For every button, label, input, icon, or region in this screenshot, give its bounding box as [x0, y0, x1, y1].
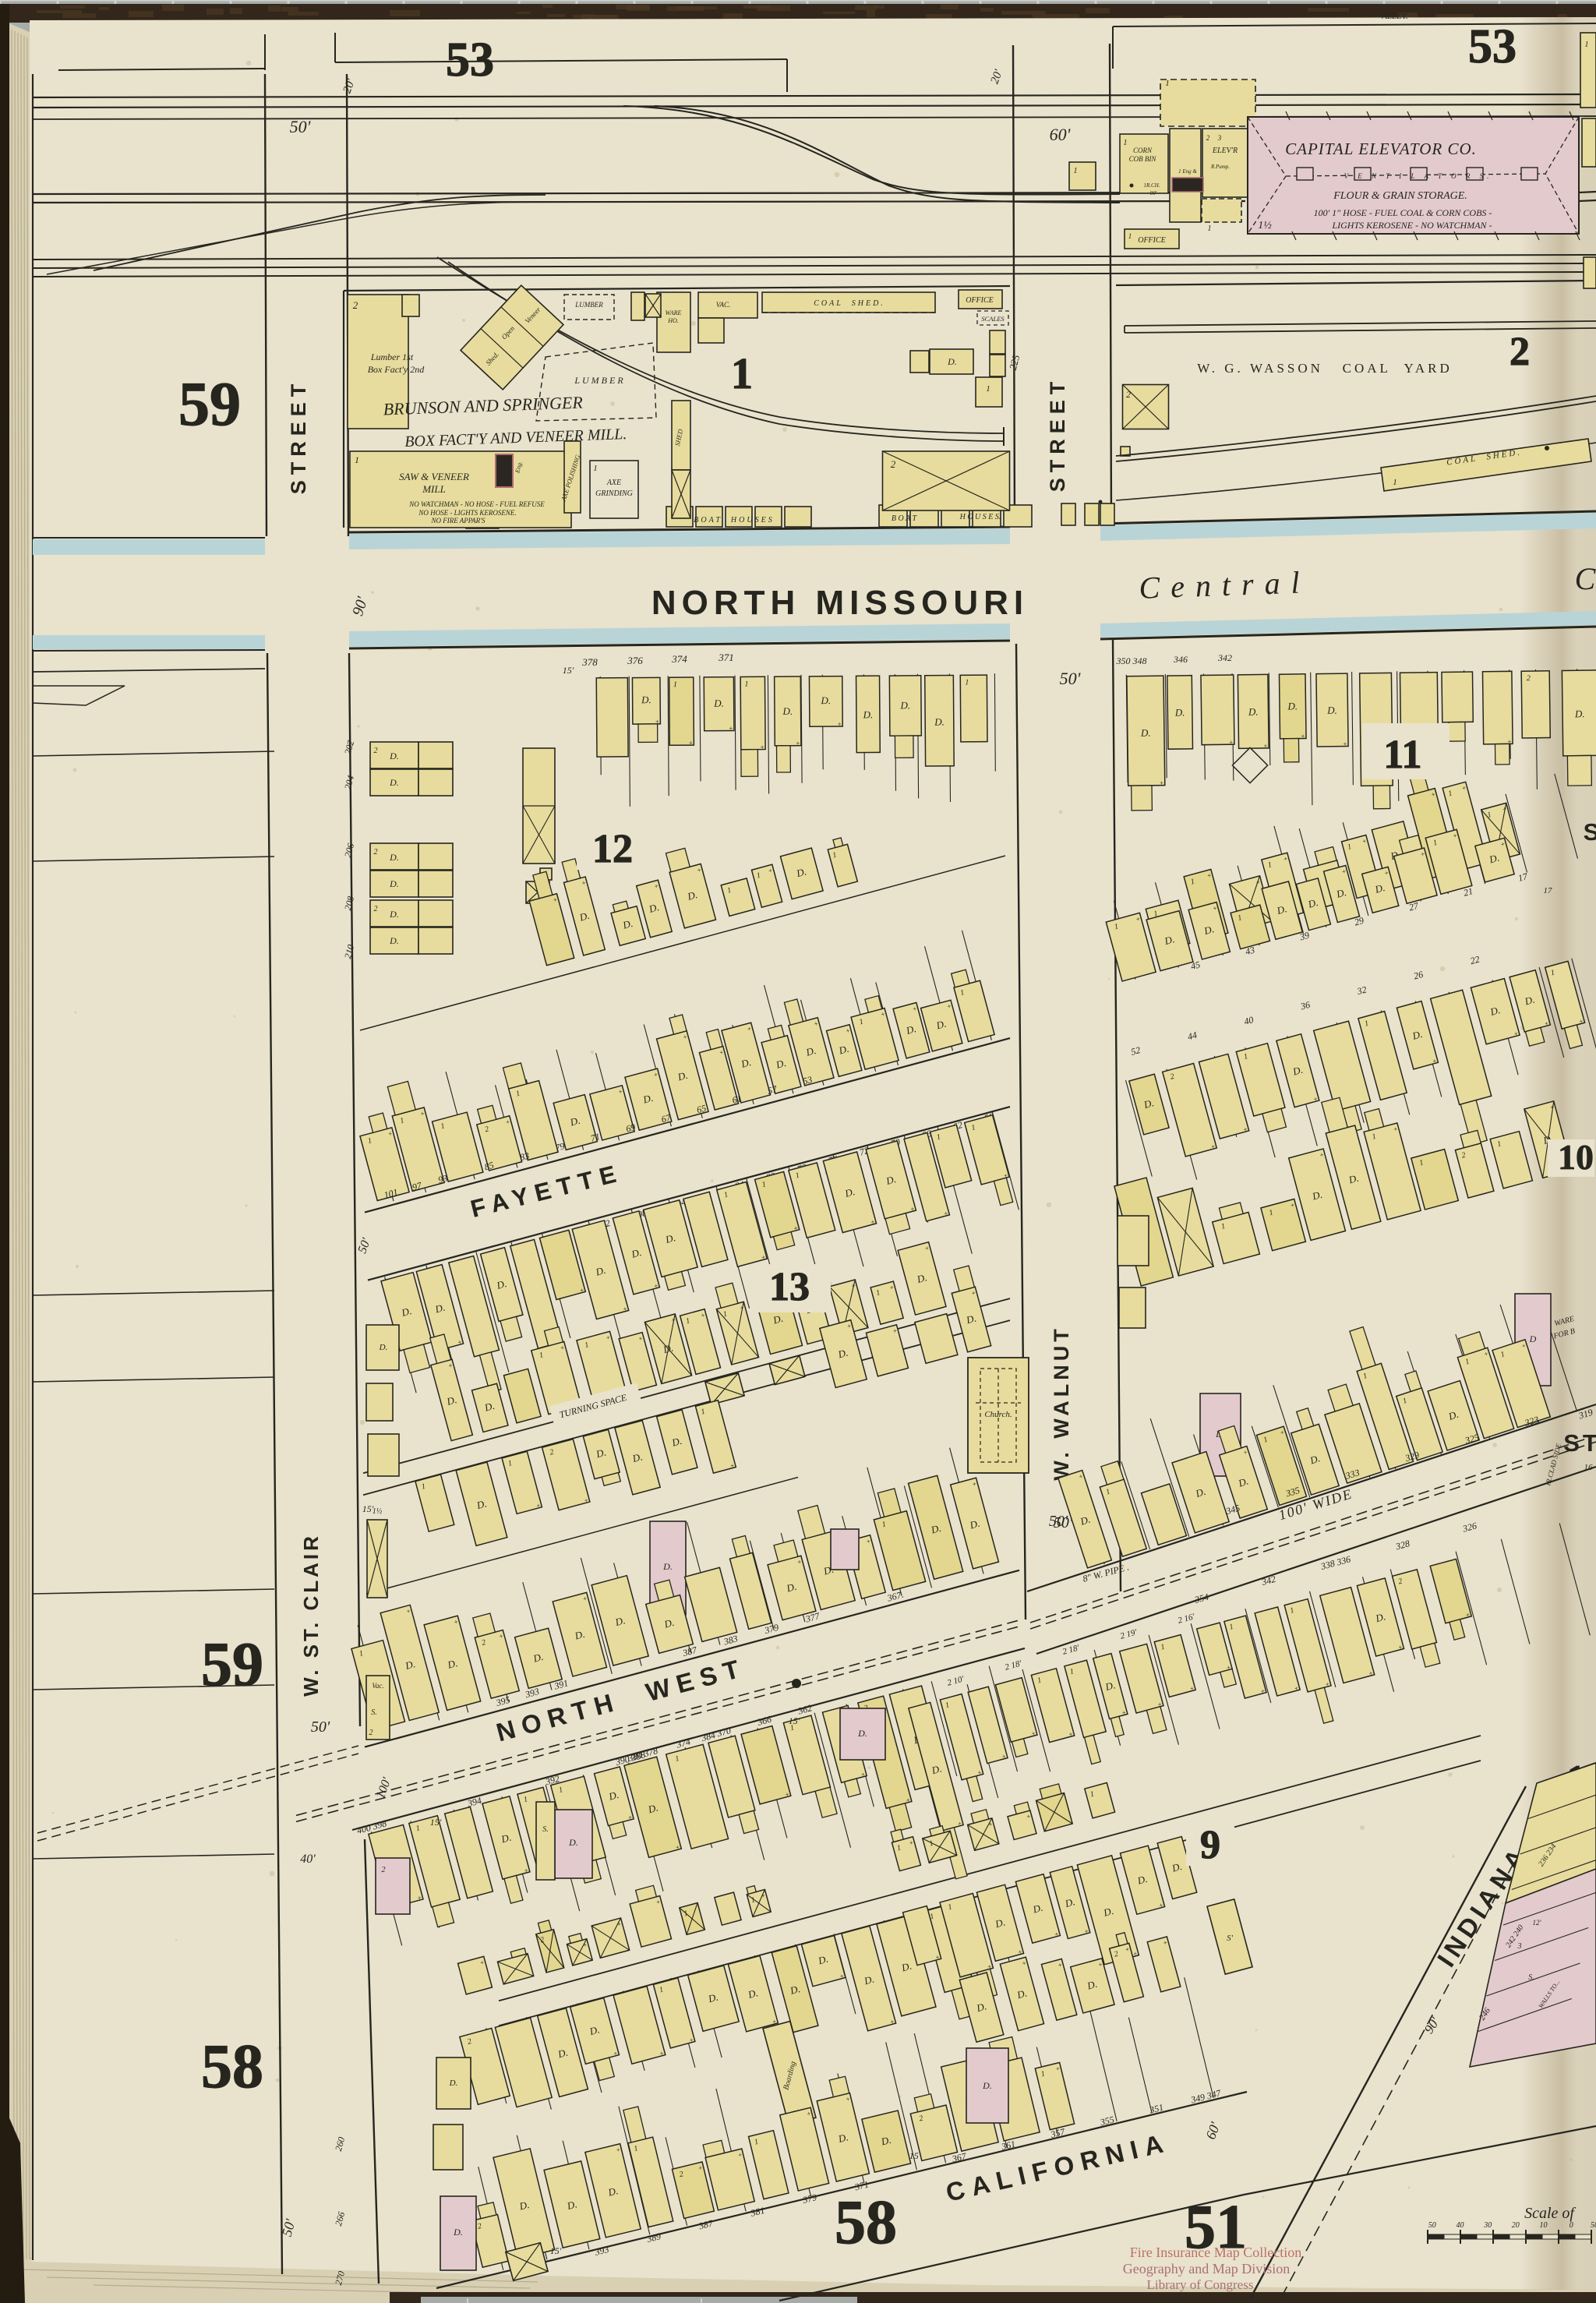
svg-text:D.: D.: [713, 698, 724, 709]
svg-text:ELEV'R: ELEV'R: [1212, 147, 1238, 155]
svg-text:W. G. WASSON COAL YARD: W. G. WASSON COAL YARD: [1197, 361, 1452, 376]
svg-text:D.: D.: [1248, 706, 1259, 718]
svg-text:S.: S.: [1528, 1973, 1534, 1982]
svg-text:D.: D.: [863, 708, 874, 720]
svg-text:D.: D.: [1287, 700, 1298, 712]
svg-text:D.: D.: [899, 699, 910, 711]
svg-text:1: 1: [986, 384, 990, 394]
svg-text:2: 2: [374, 848, 378, 857]
svg-text:GRINDING: GRINDING: [595, 489, 633, 498]
svg-text:15': 15': [563, 665, 574, 676]
svg-text:10: 10: [1540, 2221, 1548, 2230]
svg-text:2: 2: [382, 1866, 386, 1874]
svg-text:2: 2: [1509, 330, 1530, 374]
svg-text:Vac.: Vac.: [372, 1682, 383, 1690]
svg-text:NO FIRE APPAR'S: NO FIRE APPAR'S: [430, 517, 486, 525]
svg-text:CORN: CORN: [1133, 147, 1153, 154]
svg-text:50': 50': [1049, 1513, 1068, 1530]
svg-text:HO.: HO.: [667, 317, 679, 324]
svg-text:+: +: [838, 720, 842, 728]
svg-text:17: 17: [1544, 886, 1553, 895]
svg-text:+: +: [1229, 738, 1233, 746]
svg-text:V E N T I L A T: V E N T I L A T O R S.: [1344, 172, 1493, 180]
svg-text:+: +: [1343, 740, 1347, 747]
svg-text:1½: 1½: [1258, 220, 1272, 231]
svg-text:1: 1: [1074, 167, 1078, 175]
svg-text:100' 1" HOSE - FUEL COAL & CO: 100' 1" HOSE - FUEL COAL & CORN COBS -: [1314, 207, 1492, 218]
svg-text:1: 1: [673, 680, 677, 689]
svg-text:NO WATCHMAN - NO HOSE - FUEL R: NO WATCHMAN - NO HOSE - FUEL REFUSE: [408, 500, 545, 508]
svg-text:VAC.: VAC.: [716, 301, 731, 309]
svg-text:+: +: [796, 740, 800, 747]
svg-text:2: 2: [1206, 134, 1210, 142]
svg-text:50': 50': [311, 1718, 330, 1736]
svg-text:16: 16: [1584, 1463, 1594, 1472]
svg-text:15': 15': [550, 2245, 562, 2256]
svg-text:Box Fact'y 2nd: Box Fact'y 2nd: [368, 364, 425, 375]
svg-text:3: 3: [1517, 1942, 1522, 1951]
svg-text:1: 1: [1165, 79, 1170, 88]
svg-text:ALLEY.: ALLEY.: [1381, 12, 1408, 21]
svg-text:346: 346: [1173, 654, 1188, 665]
svg-text:Fire Insurance Map Collection: Fire Insurance Map Collection: [1130, 2245, 1301, 2260]
svg-text:2: 2: [369, 1729, 373, 1737]
svg-text:D.: D.: [820, 694, 831, 706]
svg-text:1: 1: [593, 464, 598, 473]
svg-text:13: 13: [769, 1265, 810, 1309]
svg-text:1: 1: [1208, 224, 1212, 233]
svg-text:58: 58: [201, 2033, 263, 2101]
svg-text:+: +: [1263, 742, 1267, 750]
svg-text:D.: D.: [389, 852, 399, 863]
svg-text:58: 58: [835, 2188, 897, 2257]
svg-text:350 348: 350 348: [1116, 655, 1147, 666]
svg-text:374: 374: [671, 653, 687, 665]
svg-text:S.: S.: [371, 1708, 377, 1717]
svg-text:ST: ST: [1563, 1429, 1596, 1457]
svg-text:STREET: STREET: [287, 379, 310, 495]
svg-text:+: +: [1507, 737, 1511, 745]
svg-text:60': 60': [1050, 125, 1071, 144]
svg-text:D.: D.: [1326, 705, 1337, 716]
svg-text:59: 59: [201, 1630, 263, 1699]
svg-text:D.: D.: [389, 909, 399, 920]
svg-text:D.: D.: [982, 2080, 992, 2091]
svg-text:S': S': [1227, 1934, 1234, 1943]
svg-text:1: 1: [1393, 478, 1397, 487]
svg-text:OFFICE: OFFICE: [966, 296, 994, 305]
svg-text:D.: D.: [568, 1837, 578, 1848]
svg-text:53: 53: [1468, 20, 1517, 73]
svg-text:D.: D.: [1574, 708, 1585, 719]
svg-text:FLOUR & GRAIN STORAGE.: FLOUR & GRAIN STORAGE.: [1333, 190, 1467, 202]
svg-text:342: 342: [1217, 652, 1232, 663]
svg-text:COAL SHED.: COAL SHED.: [814, 299, 885, 308]
svg-text:LIGHTS KEROSENE - NO WATCHM: LIGHTS KEROSENE - NO WATCHMAN -: [1331, 220, 1492, 231]
svg-text:D.: D.: [453, 2227, 463, 2238]
svg-text:50: 50: [1591, 2221, 1596, 2230]
svg-text:D.: D.: [641, 694, 651, 705]
svg-text:12': 12': [1533, 1919, 1542, 1927]
svg-text:+: +: [729, 725, 733, 733]
svg-text:40: 40: [1457, 2221, 1464, 2230]
svg-text:D.: D.: [662, 1561, 673, 1572]
svg-text:LUMBER: LUMBER: [574, 375, 625, 386]
svg-text:D.: D.: [934, 716, 945, 728]
svg-text:53: 53: [446, 34, 494, 87]
svg-text:40': 40': [300, 1853, 316, 1866]
svg-text:0: 0: [1570, 2221, 1573, 2230]
svg-text:1 Eng &: 1 Eng &: [1178, 168, 1197, 175]
svg-text:+: +: [761, 744, 764, 751]
svg-text:D.: D.: [389, 777, 399, 788]
svg-text:MILL: MILL: [422, 483, 446, 495]
svg-text:H O U S E S.: H O U S E S.: [959, 513, 1001, 521]
svg-text:D.: D.: [449, 2079, 458, 2088]
svg-text:Geography and Map Division: Geography and Map Division: [1123, 2261, 1290, 2277]
svg-text:20: 20: [1512, 2221, 1520, 2230]
svg-text:15': 15': [430, 1817, 442, 1828]
svg-text:1: 1: [355, 454, 359, 465]
svg-text:D.: D.: [782, 705, 793, 717]
svg-text:S.: S.: [542, 1825, 549, 1834]
svg-text:Central: Central: [1139, 564, 1312, 606]
svg-text:Scale of: Scale of: [1524, 2205, 1576, 2222]
svg-text:Lumber 1st: Lumber 1st: [370, 351, 414, 362]
svg-text:1½: 1½: [373, 1507, 383, 1516]
svg-text:W. ST. CLAIR: W. ST. CLAIR: [299, 1533, 323, 1697]
svg-text:LUMBER: LUMBER: [574, 301, 603, 309]
svg-text:2: 2: [374, 747, 378, 755]
svg-text:3: 3: [1217, 134, 1222, 142]
svg-text:11: 11: [1383, 733, 1421, 777]
svg-text:12: 12: [592, 827, 633, 871]
svg-text:D.: D.: [947, 356, 957, 367]
svg-text:CAPITAL ELEVATOR CO.: CAPITAL ELEVATOR CO.: [1285, 140, 1477, 158]
svg-text:2: 2: [1126, 389, 1131, 400]
svg-text:BOAT HOUSES: BOAT HOUSES: [694, 516, 774, 525]
svg-text:SCALES: SCALES: [981, 315, 1005, 323]
svg-text:15': 15': [789, 1715, 800, 1726]
svg-text:90': 90': [1150, 190, 1157, 196]
svg-text:STREET: STREET: [1046, 376, 1069, 493]
svg-text:2: 2: [891, 458, 896, 470]
svg-text:2: 2: [374, 905, 378, 913]
svg-text:50': 50': [1060, 669, 1081, 688]
svg-text:1: 1: [1585, 41, 1589, 49]
svg-text:R.Pump.: R.Pump.: [1210, 164, 1230, 170]
svg-text:+: +: [1301, 732, 1305, 740]
svg-text:15': 15': [362, 1503, 374, 1514]
svg-text:D.: D.: [389, 935, 399, 946]
svg-text:50: 50: [1428, 2221, 1436, 2230]
svg-text:1: 1: [965, 678, 969, 687]
svg-text:D.: D.: [379, 1343, 388, 1352]
svg-text:15': 15': [909, 2150, 921, 2161]
svg-text:S: S: [1584, 818, 1596, 846]
svg-text:1R.CH.: 1R.CH.: [1144, 182, 1160, 189]
svg-text:+: +: [655, 718, 659, 726]
svg-text:30: 30: [1483, 2221, 1492, 2230]
svg-text:W. WALNUT: W. WALNUT: [1050, 1325, 1073, 1480]
svg-text:B O A T: B O A T: [892, 514, 918, 523]
svg-text:10: 10: [1558, 1137, 1594, 1177]
svg-text:D.: D.: [1174, 707, 1185, 719]
svg-text:D: D: [1529, 1333, 1537, 1344]
svg-text:D.: D.: [389, 878, 399, 889]
svg-text:2: 2: [353, 299, 358, 311]
svg-text:NORTH MISSOURI: NORTH MISSOURI: [651, 584, 1029, 622]
svg-text:D.: D.: [389, 751, 399, 761]
svg-text:378: 378: [581, 656, 598, 668]
svg-text:COB BIN: COB BIN: [1129, 155, 1157, 163]
svg-text:C: C: [1575, 561, 1596, 596]
svg-text:NO HOSE - LIGHTS KEROSENE.: NO HOSE - LIGHTS KEROSENE.: [418, 509, 516, 517]
svg-text:9: 9: [1200, 1823, 1220, 1867]
svg-text:50': 50': [290, 117, 311, 136]
svg-text:Library of Congress: Library of Congress: [1147, 2277, 1254, 2292]
svg-text:+: +: [689, 739, 693, 747]
svg-text:WARE: WARE: [666, 309, 682, 316]
svg-text:D.: D.: [857, 1728, 867, 1739]
svg-text:AXE: AXE: [606, 479, 621, 487]
svg-text:1: 1: [1128, 232, 1132, 240]
svg-text:Church.: Church.: [984, 1410, 1012, 1419]
svg-text:371: 371: [718, 652, 734, 663]
svg-text:376: 376: [627, 655, 643, 666]
svg-text:+: +: [1160, 779, 1163, 787]
svg-text:SAW & VENEER: SAW & VENEER: [399, 471, 469, 482]
svg-text:59: 59: [178, 370, 241, 439]
svg-text:1: 1: [1124, 139, 1128, 147]
svg-text:OFFICE: OFFICE: [1138, 236, 1166, 245]
svg-text:D.: D.: [1140, 727, 1151, 739]
svg-text:1: 1: [731, 350, 753, 398]
svg-text:2: 2: [1527, 674, 1531, 683]
svg-text:1: 1: [744, 680, 748, 688]
